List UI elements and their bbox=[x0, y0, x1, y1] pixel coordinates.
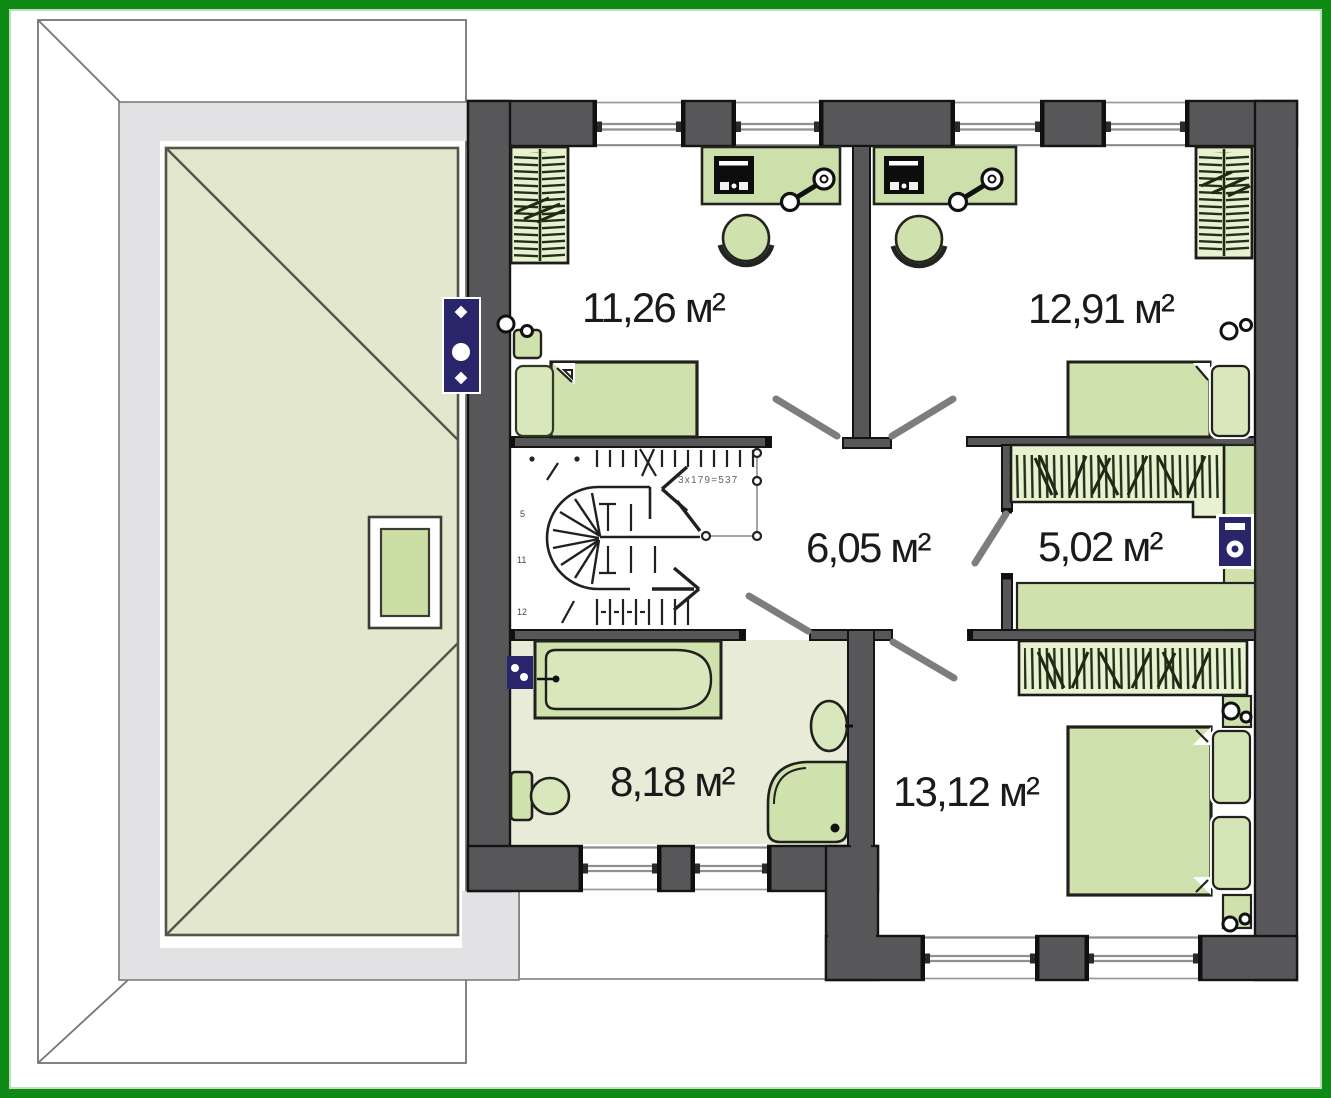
svg-text:11: 11 bbox=[517, 555, 526, 565]
svg-text:3x179=537: 3x179=537 bbox=[678, 475, 739, 486]
svg-text:6,05 м²: 6,05 м² bbox=[806, 524, 931, 571]
svg-text:11,26 м²: 11,26 м² bbox=[582, 284, 726, 331]
svg-text:8,18 м²: 8,18 м² bbox=[610, 758, 735, 805]
svg-text:12,91 м²: 12,91 м² bbox=[1028, 285, 1175, 332]
svg-text:13,12 м²: 13,12 м² bbox=[893, 768, 1040, 815]
svg-text:5,02 м²: 5,02 м² bbox=[1038, 523, 1163, 570]
svg-text:5: 5 bbox=[520, 509, 525, 519]
svg-text:12: 12 bbox=[517, 607, 527, 617]
